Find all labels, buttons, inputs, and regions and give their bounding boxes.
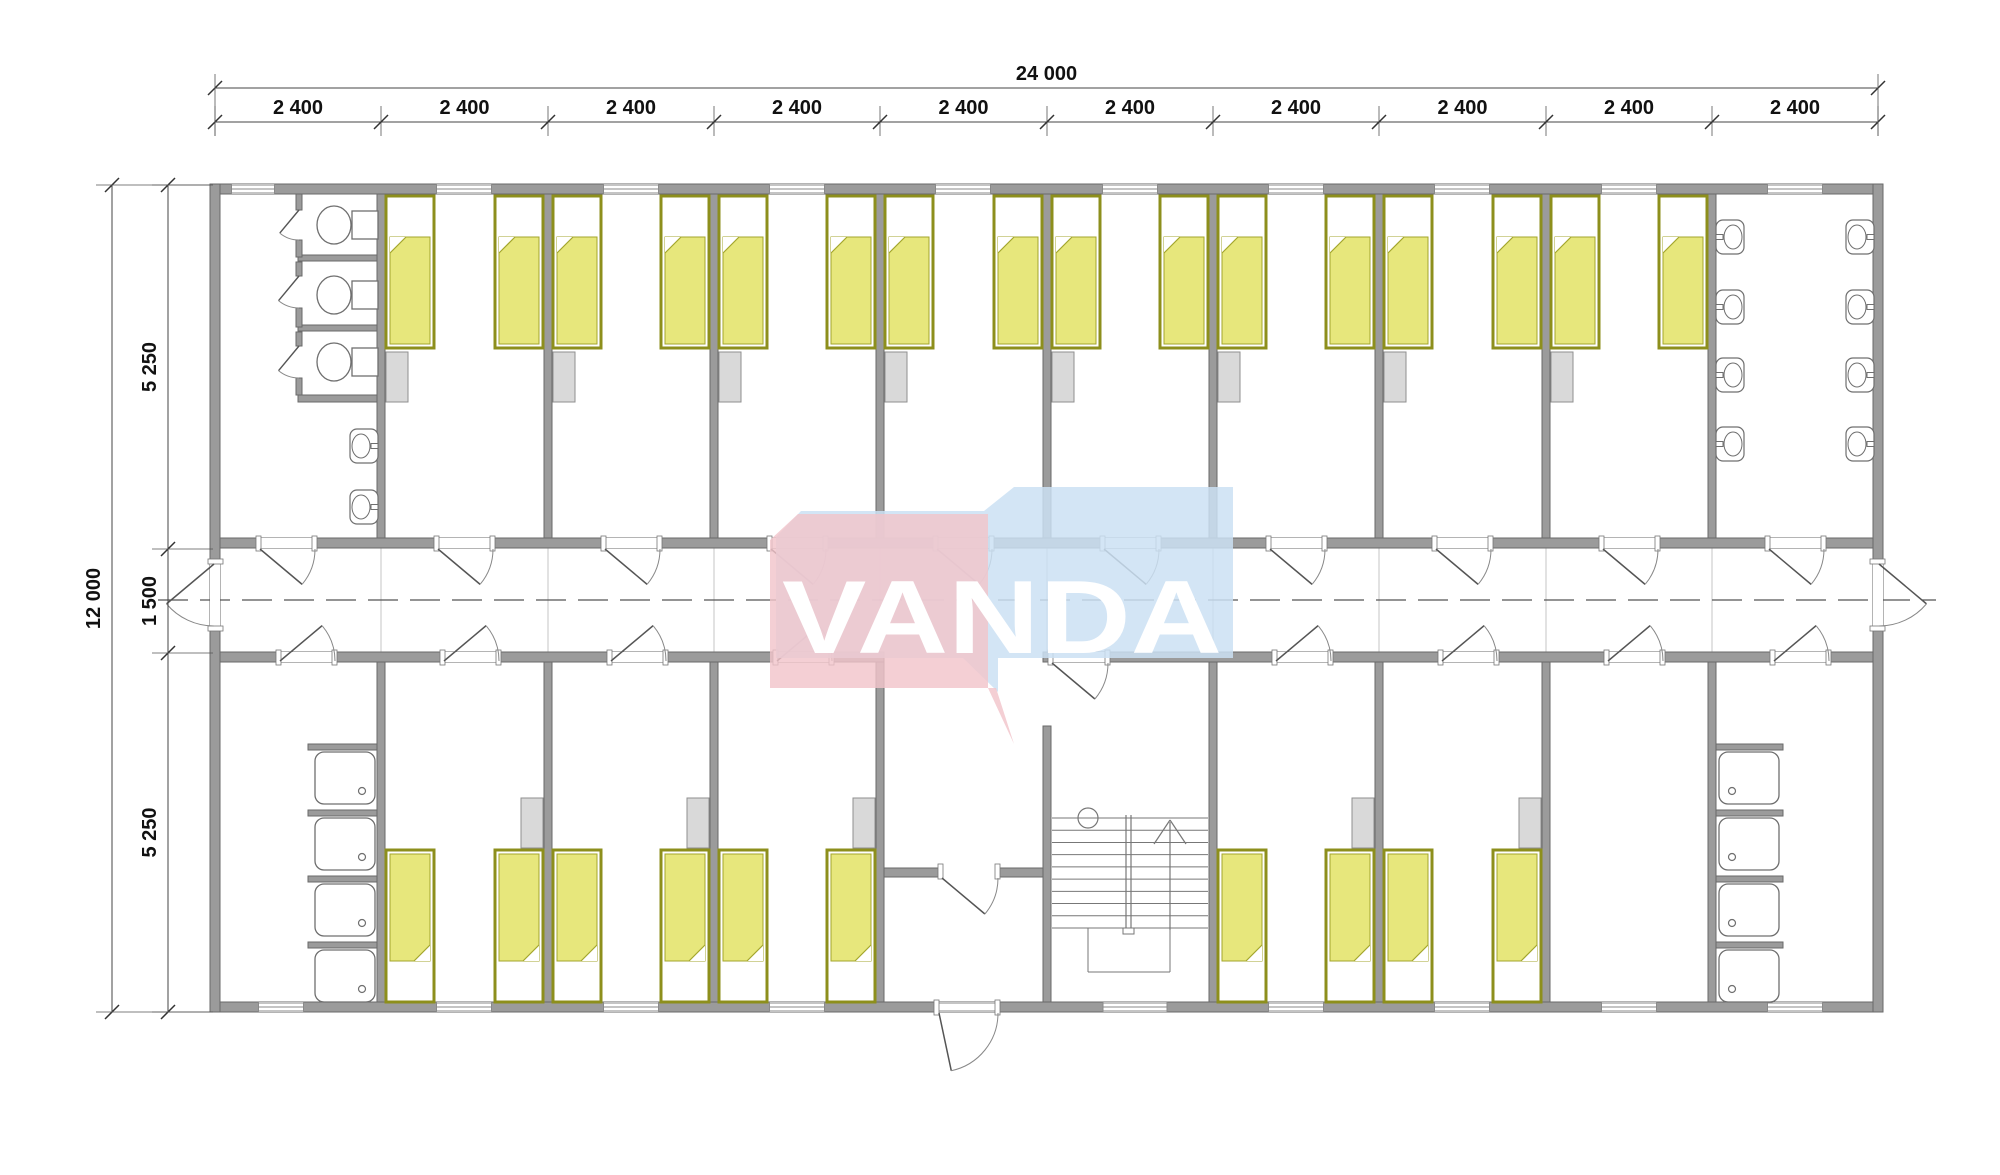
brand-logo-text: VANDA xyxy=(782,560,1222,676)
sink-icon xyxy=(1846,358,1874,392)
bed xyxy=(994,196,1042,348)
shower-tray-icon xyxy=(315,752,375,804)
bed xyxy=(1326,196,1374,348)
dimension-label: 24 000 xyxy=(1016,63,1077,85)
shower-tray-icon xyxy=(315,950,375,1002)
toilets xyxy=(317,206,378,381)
door xyxy=(1765,536,1826,584)
dimension-label: 2 400 xyxy=(1770,97,1820,119)
window-icon xyxy=(437,1002,492,1012)
shower-tray-icon xyxy=(315,884,375,936)
dimension-label: 2 400 xyxy=(1271,97,1321,119)
door xyxy=(276,626,337,665)
window-icon xyxy=(770,1002,825,1012)
door xyxy=(434,536,495,584)
dimension-label: 12 000 xyxy=(83,568,105,629)
bed xyxy=(386,850,434,1002)
wardrobe xyxy=(1551,352,1573,402)
dimension-label: 2 400 xyxy=(439,97,489,119)
window-icon xyxy=(936,184,991,194)
floor-plan-drawing: VANDA24 0002 4002 4002 4002 4002 4002 40… xyxy=(0,0,2000,1175)
bed xyxy=(553,196,601,348)
door xyxy=(256,536,317,584)
wardrobe xyxy=(687,798,709,848)
shower-tray-icon xyxy=(1719,818,1779,870)
window-icon xyxy=(232,184,275,194)
wardrobe xyxy=(885,352,907,402)
door xyxy=(601,536,662,584)
window-icon xyxy=(437,184,492,194)
stall-door xyxy=(280,210,299,240)
bed xyxy=(386,196,434,348)
sink-icon xyxy=(1716,358,1744,392)
dimension-label: 2 400 xyxy=(938,97,988,119)
window-icon xyxy=(1103,1002,1167,1012)
brand-watermark: VANDA xyxy=(770,487,1233,744)
sink-icon xyxy=(1846,220,1874,254)
door xyxy=(1432,536,1493,584)
sink-icon xyxy=(1846,290,1874,324)
window-icon xyxy=(1602,1002,1657,1012)
window-icon xyxy=(604,1002,659,1012)
dimension-label: 1 500 xyxy=(139,576,161,626)
bed xyxy=(661,196,709,348)
window-icon xyxy=(1269,1002,1324,1012)
bed xyxy=(1052,196,1100,348)
window-icon xyxy=(1768,1002,1823,1012)
door xyxy=(1599,536,1660,584)
bed xyxy=(1551,196,1599,348)
bed xyxy=(1218,196,1266,348)
door xyxy=(440,626,501,665)
window-icon xyxy=(1103,184,1158,194)
floor-plan-canvas: VANDA24 0002 4002 4002 4002 4002 4002 40… xyxy=(0,0,2000,1175)
wardrobe xyxy=(1519,798,1541,848)
bed xyxy=(827,850,875,1002)
toilet-icon xyxy=(317,343,378,381)
window-icon xyxy=(1602,184,1657,194)
bed xyxy=(719,196,767,348)
bed xyxy=(661,850,709,1002)
dimension-label: 2 400 xyxy=(606,97,656,119)
wardrobe xyxy=(1352,798,1374,848)
bed xyxy=(495,196,543,348)
dimension-label: 2 400 xyxy=(1105,97,1155,119)
bed xyxy=(885,196,933,348)
wardrobe xyxy=(853,798,875,848)
sink-icon xyxy=(350,490,378,524)
toilet-icon xyxy=(317,206,378,244)
bed xyxy=(553,850,601,1002)
door xyxy=(1266,536,1327,584)
wardrobe xyxy=(521,798,543,848)
door xyxy=(1604,626,1665,665)
dimension-label: 2 400 xyxy=(273,97,323,119)
staircase xyxy=(1052,808,1208,972)
wardrobe xyxy=(1384,352,1406,402)
shower-tray-icon xyxy=(315,818,375,870)
door-main-entrance xyxy=(934,1000,1000,1071)
window-icon xyxy=(1435,1002,1490,1012)
window-icon xyxy=(604,184,659,194)
toilet-icon xyxy=(317,276,378,314)
window-icon xyxy=(1269,184,1324,194)
bed xyxy=(1493,196,1541,348)
bed xyxy=(1326,850,1374,1002)
sink-icon xyxy=(1716,427,1744,461)
door-exit-right xyxy=(1870,559,1926,631)
bed xyxy=(1384,196,1432,348)
sink-icon xyxy=(350,429,378,463)
dimension-label: 2 400 xyxy=(1437,97,1487,119)
wardrobe xyxy=(719,352,741,402)
dimension-label: 5 250 xyxy=(139,807,161,857)
bed xyxy=(1160,196,1208,348)
door xyxy=(1770,626,1831,665)
door xyxy=(1438,626,1499,665)
stall-door xyxy=(279,276,299,308)
bed xyxy=(1493,850,1541,1002)
wardrobe xyxy=(553,352,575,402)
bed xyxy=(827,196,875,348)
shower-tray-icon xyxy=(1719,752,1779,804)
bed xyxy=(719,850,767,1002)
bed xyxy=(1218,850,1266,1002)
window-icon xyxy=(259,1002,304,1012)
shower-tray-icon xyxy=(1719,884,1779,936)
door-vestibule xyxy=(938,864,1000,914)
window-icon xyxy=(1435,184,1490,194)
sink-icon xyxy=(1846,427,1874,461)
shower-tray-icon xyxy=(1719,950,1779,1002)
dimension-label: 5 250 xyxy=(139,342,161,392)
stall-door xyxy=(279,346,299,378)
window-icon xyxy=(770,184,825,194)
door-exit-left xyxy=(167,559,223,631)
door xyxy=(1272,626,1333,665)
dimension-label: 2 400 xyxy=(1604,97,1654,119)
wardrobe xyxy=(386,352,408,402)
door xyxy=(607,626,668,665)
stall-doors xyxy=(279,210,299,378)
dimension-label: 2 400 xyxy=(772,97,822,119)
wardrobe xyxy=(1218,352,1240,402)
bed xyxy=(1384,850,1432,1002)
bed xyxy=(1659,196,1707,348)
window-icon xyxy=(1768,184,1823,194)
sink-icon xyxy=(1716,290,1744,324)
bed xyxy=(495,850,543,1002)
wardrobe xyxy=(1052,352,1074,402)
sink-icon xyxy=(1716,220,1744,254)
